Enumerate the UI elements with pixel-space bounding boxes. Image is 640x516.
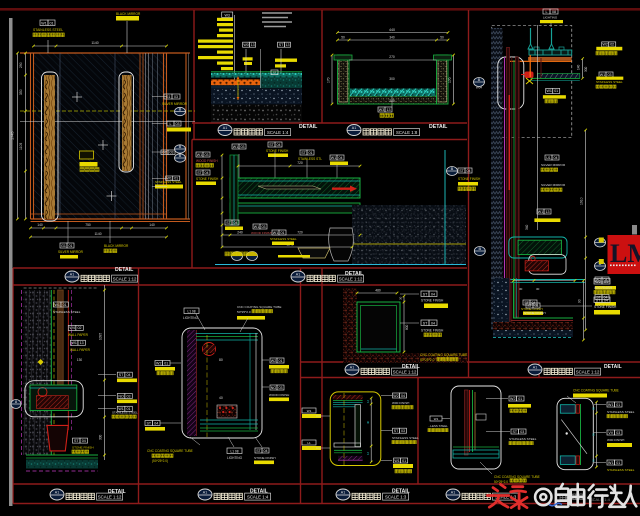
svg-text:800: 800: [405, 324, 409, 330]
svg-text:LIGHTING: LIGHTING: [543, 16, 558, 20]
svg-text:DETAIL: DETAIL: [402, 364, 420, 370]
svg-text:SCALE 1:8: SCALE 1:8: [396, 130, 418, 135]
svg-text:DETAIL: DETAIL: [392, 489, 410, 495]
svg-text:ST: ST: [512, 430, 517, 434]
svg-text:STAINLESS STEEL: STAINLESS STEEL: [53, 310, 81, 314]
svg-text:140: 140: [577, 64, 581, 70]
svg-text:A1: A1: [296, 273, 300, 277]
svg-text:W00 FINISH: W00 FINISH: [392, 401, 409, 405]
svg-text:04: 04: [339, 156, 343, 160]
svg-text:750: 750: [85, 223, 91, 227]
svg-text:340: 340: [389, 36, 395, 40]
svg-text:CNC COATING SQUARE TUBE: CNC COATING SQUARE TUBE: [573, 389, 619, 393]
svg-text:720: 720: [297, 161, 303, 165]
svg-text:SCALE 1:3: SCALE 1:3: [385, 494, 407, 499]
svg-text:DETAIL: DETAIL: [345, 271, 364, 277]
svg-text:ST: ST: [423, 292, 428, 296]
svg-text:SILVER MIRROR: SILVER MIRROR: [541, 163, 566, 167]
svg-text:W2: W2: [603, 43, 608, 47]
svg-text:140: 140: [37, 223, 43, 227]
svg-text:W2: W2: [595, 280, 600, 284]
svg-text:12: 12: [366, 399, 370, 403]
svg-text:W2: W2: [393, 394, 398, 398]
svg-text:SCALE 1:12: SCALE 1:12: [339, 276, 363, 281]
svg-text:ST: ST: [423, 321, 428, 325]
svg-text:STONE FINISH: STONE FINISH: [421, 299, 444, 303]
svg-text:SCALE 1:4: SCALE 1:4: [590, 497, 611, 502]
svg-text:W3: W3: [379, 108, 384, 112]
svg-text:03: 03: [205, 153, 209, 157]
svg-text:SCALE 1:4: SCALE 1:4: [267, 130, 289, 135]
svg-text:03: 03: [127, 394, 131, 398]
svg-text:NO: NO: [271, 386, 277, 390]
svg-text:W1: W1: [394, 459, 399, 463]
svg-text:50*25*2.0: 50*25*2.0: [420, 358, 435, 362]
svg-text:1105: 1105: [19, 143, 23, 150]
svg-text:03: 03: [616, 431, 620, 435]
svg-text:03: 03: [279, 386, 283, 390]
svg-text:A1: A1: [352, 126, 356, 130]
svg-text:DETAIL: DETAIL: [250, 489, 268, 495]
svg-text:01: 01: [50, 21, 54, 25]
svg-text:440: 440: [389, 28, 395, 32]
svg-text:03: 03: [608, 73, 612, 77]
svg-text:CNC COATING SQUARE TUBE: CNC COATING SQUARE TUBE: [420, 353, 468, 357]
svg-text:W1: W1: [41, 21, 46, 25]
svg-text:04: 04: [535, 304, 539, 308]
svg-text:170: 170: [448, 77, 452, 83]
svg-text:W1: W1: [434, 417, 439, 421]
svg-text:350: 350: [19, 89, 23, 95]
svg-text:40: 40: [366, 420, 370, 424]
svg-text:L1: L1: [307, 441, 311, 445]
svg-text:01: 01: [518, 397, 522, 401]
svg-text:720: 720: [297, 231, 303, 235]
svg-text:LIGHTING: LIGHTING: [227, 456, 243, 460]
svg-text:04: 04: [127, 373, 131, 377]
svg-text:300: 300: [99, 434, 103, 440]
svg-text:ST: ST: [146, 421, 151, 425]
svg-text:ST: ST: [279, 43, 284, 47]
svg-text:W00 FINISH: W00 FINISH: [607, 438, 624, 442]
svg-text:1140: 1140: [91, 41, 98, 45]
svg-text:STONE FINISH: STONE FINISH: [458, 177, 481, 181]
svg-text:W1: W1: [608, 461, 613, 465]
svg-text:STONE FINISH: STONE FINISH: [421, 329, 444, 333]
svg-text:W00 FINISH: W00 FINISH: [594, 286, 613, 290]
svg-text:W1: W1: [71, 341, 76, 345]
svg-text:13: 13: [387, 108, 391, 112]
svg-text:STONE FINISH: STONE FINISH: [266, 149, 289, 153]
svg-text:DETAIL: DETAIL: [108, 489, 126, 495]
svg-text:13: 13: [546, 210, 550, 214]
svg-text:W2: W2: [156, 361, 161, 365]
svg-text:SCALE 1:12: SCALE 1:12: [98, 494, 122, 499]
svg-text:STAINLESS STEEL: STAINLESS STEEL: [607, 410, 635, 414]
svg-text:G1: G1: [166, 95, 171, 99]
svg-text:03: 03: [520, 430, 524, 434]
svg-text:W4: W4: [69, 326, 74, 330]
svg-text:B: B: [478, 77, 481, 82]
svg-text:ST: ST: [256, 449, 261, 453]
svg-text:W1: W1: [233, 145, 238, 149]
svg-text:SCALE 1:12: SCALE 1:12: [113, 276, 137, 281]
svg-text:12: 12: [366, 451, 370, 455]
svg-text:ST: ST: [226, 221, 231, 225]
svg-text:STAINLESS STEEL: STAINLESS STEEL: [509, 437, 537, 441]
svg-text:B: B: [451, 166, 454, 171]
svg-text:W1: W1: [547, 89, 552, 93]
svg-text:240: 240: [237, 231, 243, 235]
svg-text:04: 04: [554, 156, 558, 160]
svg-text:340: 340: [525, 224, 529, 230]
svg-text:W0: W0: [243, 43, 248, 47]
svg-text:480: 480: [375, 289, 381, 293]
svg-text:90: 90: [578, 299, 582, 303]
svg-text:STAINLESS STEEL: STAINLESS STEEL: [33, 28, 63, 32]
svg-text:13: 13: [286, 43, 290, 47]
svg-text:LM: LM: [610, 239, 640, 268]
svg-text:50: 50: [592, 432, 596, 436]
svg-text:50: 50: [592, 458, 596, 462]
svg-text:BLACK MIRROR: BLACK MIRROR: [116, 12, 141, 16]
svg-text:ST: ST: [596, 298, 601, 302]
svg-text:01: 01: [309, 151, 313, 155]
svg-text:ST: ST: [119, 373, 124, 377]
svg-text:04: 04: [82, 439, 86, 443]
svg-text:SILVER MIRROR: SILVER MIRROR: [58, 250, 84, 254]
svg-text:W1: W1: [331, 156, 336, 160]
svg-text:U1: U1: [546, 156, 551, 160]
svg-text:STONE FINISH: STONE FINISH: [196, 177, 219, 181]
svg-text:WOOD FINISH: WOOD FINISH: [196, 159, 218, 163]
svg-text:WOOD FINISH: WOOD FINISH: [269, 393, 289, 397]
svg-text:A1: A1: [55, 491, 59, 495]
svg-text:VV: VV: [608, 431, 613, 435]
svg-text:04: 04: [205, 171, 209, 175]
svg-text:ST: ST: [269, 143, 274, 147]
svg-text:W1: W1: [307, 409, 312, 413]
svg-text:DETAIL: DETAIL: [604, 364, 622, 370]
svg-text:50: 50: [440, 36, 444, 40]
svg-text:SCALE 1:4: SCALE 1:4: [247, 494, 269, 499]
svg-text:50: 50: [592, 406, 596, 410]
svg-text:STAINLESS STEEL: STAINLESS STEEL: [607, 468, 635, 472]
svg-text:W2: W2: [271, 359, 276, 363]
svg-text:A1: A1: [70, 273, 74, 277]
svg-text:290: 290: [19, 62, 23, 68]
svg-text:STONE FINISH: STONE FINISH: [524, 311, 546, 315]
svg-text:04: 04: [604, 280, 608, 284]
svg-text:W2: W2: [510, 397, 515, 401]
svg-text:W1: W1: [54, 303, 59, 307]
svg-text:04: 04: [401, 394, 405, 398]
svg-text:W1: W1: [538, 210, 543, 214]
svg-text:01: 01: [616, 403, 620, 407]
svg-text:04: 04: [431, 292, 435, 296]
svg-text:A1: A1: [223, 126, 227, 130]
svg-text:140: 140: [149, 223, 155, 227]
svg-text:ST: ST: [197, 171, 202, 175]
svg-text:B: B: [179, 144, 182, 149]
svg-text:WALL PAPER: WALL PAPER: [70, 348, 91, 352]
svg-text:03: 03: [262, 225, 266, 229]
svg-text:04: 04: [277, 143, 281, 147]
svg-text:W1: W1: [197, 153, 202, 157]
svg-text:L1 08: L1 08: [188, 309, 196, 313]
svg-text:03: 03: [170, 150, 174, 154]
svg-text:L1 08: L1 08: [231, 449, 239, 453]
svg-text:01: 01: [69, 244, 73, 248]
svg-text:1910: 1910: [580, 197, 584, 205]
svg-text:STAINLESS STEEL: STAINLESS STEEL: [392, 436, 419, 440]
svg-text:DETAIL: DETAIL: [299, 124, 318, 130]
svg-text:04: 04: [431, 321, 435, 325]
svg-text:80: 80: [219, 358, 223, 362]
svg-text:01: 01: [281, 231, 285, 235]
svg-text:50*25*2.0: 50*25*2.0: [237, 310, 251, 314]
svg-text:L: L: [546, 10, 548, 14]
svg-text:W1: W1: [600, 73, 605, 77]
svg-text:A1: A1: [341, 491, 345, 495]
svg-text:CNC COATING SQUARE TUBE: CNC COATING SQUARE TUBE: [147, 449, 193, 453]
svg-text:01: 01: [164, 361, 168, 365]
svg-text:01: 01: [279, 359, 283, 363]
svg-text:B: B: [179, 153, 182, 158]
svg-text:W04: W04: [476, 86, 483, 90]
svg-text:STAINLESS STEEL: STAINLESS STEEL: [112, 411, 138, 415]
svg-text:13: 13: [251, 43, 255, 47]
svg-text:STAINLESS STEEL: STAINLESS STEEL: [270, 237, 297, 241]
svg-text:STAINLESS STEEL: STAINLESS STEEL: [155, 180, 182, 184]
svg-text:WALL PAPER: WALL PAPER: [68, 333, 89, 337]
svg-text:A1: A1: [350, 366, 354, 370]
svg-text:STONE FINISH: STONE FINISH: [594, 305, 617, 309]
svg-text:STONE FINISH: STONE FINISH: [254, 456, 276, 460]
svg-text:SILVER MIRROR: SILVER MIRROR: [541, 183, 566, 187]
svg-text:CNC COATING SQUARE TUBE: CNC COATING SQUARE TUBE: [494, 475, 540, 479]
svg-text:50: 50: [341, 36, 345, 40]
svg-text:(50*25*2.0): (50*25*2.0): [152, 459, 168, 463]
svg-text:01: 01: [63, 303, 67, 307]
svg-text:L: L: [170, 122, 172, 126]
svg-text:04: 04: [234, 221, 238, 225]
svg-text:ST: ST: [74, 439, 79, 443]
svg-text:30: 30: [519, 287, 523, 291]
svg-text:01: 01: [402, 459, 406, 463]
svg-text:03: 03: [174, 95, 178, 99]
svg-text:13: 13: [80, 341, 84, 345]
svg-text:B: B: [179, 107, 182, 112]
svg-text:300: 300: [584, 66, 588, 72]
svg-text:W1: W1: [254, 225, 259, 229]
svg-text:1745: 1745: [11, 132, 15, 140]
svg-text:02: 02: [610, 43, 614, 47]
svg-text:WOOD FINISH: WOOD FINISH: [251, 231, 272, 235]
svg-text:LIGHTING: LIGHTING: [183, 316, 199, 320]
svg-text:04: 04: [467, 169, 471, 173]
svg-text:A1: A1: [533, 366, 537, 370]
svg-text:300: 300: [389, 77, 395, 81]
svg-text:1140: 1140: [94, 232, 101, 236]
svg-text:W1: W1: [273, 231, 278, 235]
svg-text:SILVER MIRROR: SILVER MIRROR: [162, 102, 188, 106]
svg-text:STAINLESS STEEL: STAINLESS STEEL: [596, 80, 623, 84]
svg-text:04: 04: [604, 298, 608, 302]
svg-text:G1: G1: [61, 244, 66, 248]
svg-text:30: 30: [399, 296, 403, 300]
svg-text:02: 02: [78, 326, 82, 330]
svg-text:SCALE 1:12: SCALE 1:12: [576, 369, 600, 374]
svg-text:30: 30: [536, 287, 540, 291]
svg-text:...LESS STEEL: ...LESS STEEL: [428, 424, 448, 428]
svg-text:ST: ST: [273, 70, 277, 74]
svg-text:270: 270: [389, 55, 395, 59]
svg-text:NO: NO: [118, 394, 124, 398]
svg-text:BLACK MIRROR: BLACK MIRROR: [104, 244, 129, 248]
svg-text:DETAIL: DETAIL: [429, 124, 448, 130]
svg-text:SCALE 1:12: SCALE 1:12: [393, 369, 417, 374]
svg-text:04: 04: [264, 449, 268, 453]
svg-text:ST: ST: [301, 151, 306, 155]
svg-text:1095: 1095: [99, 333, 103, 340]
svg-text:DETAIL: DETAIL: [115, 267, 134, 273]
svg-text:170: 170: [327, 77, 331, 83]
svg-text:CNC COATING SQUARE TUBE: CNC COATING SQUARE TUBE: [237, 305, 281, 309]
svg-text:STONE FINISH: STONE FINISH: [72, 446, 94, 450]
svg-text:A1: A1: [451, 491, 455, 495]
svg-text:03: 03: [401, 429, 405, 433]
svg-text:ST: ST: [527, 304, 532, 308]
svg-text:03: 03: [176, 122, 180, 126]
svg-text:01: 01: [554, 89, 558, 93]
svg-text:ST: ST: [459, 169, 464, 173]
svg-text:ST: ST: [394, 429, 399, 433]
svg-text:G2: G2: [162, 150, 167, 154]
svg-text:W1: W1: [608, 403, 613, 407]
svg-text:08: 08: [552, 10, 556, 14]
svg-text:A1: A1: [203, 491, 207, 495]
svg-text:40: 40: [219, 396, 223, 400]
svg-text:130: 130: [77, 358, 83, 362]
svg-text:B: B: [478, 246, 481, 251]
svg-text:01: 01: [616, 461, 620, 465]
svg-text:04: 04: [154, 421, 158, 425]
svg-text:03: 03: [241, 145, 245, 149]
svg-text:W3: W3: [225, 13, 230, 17]
